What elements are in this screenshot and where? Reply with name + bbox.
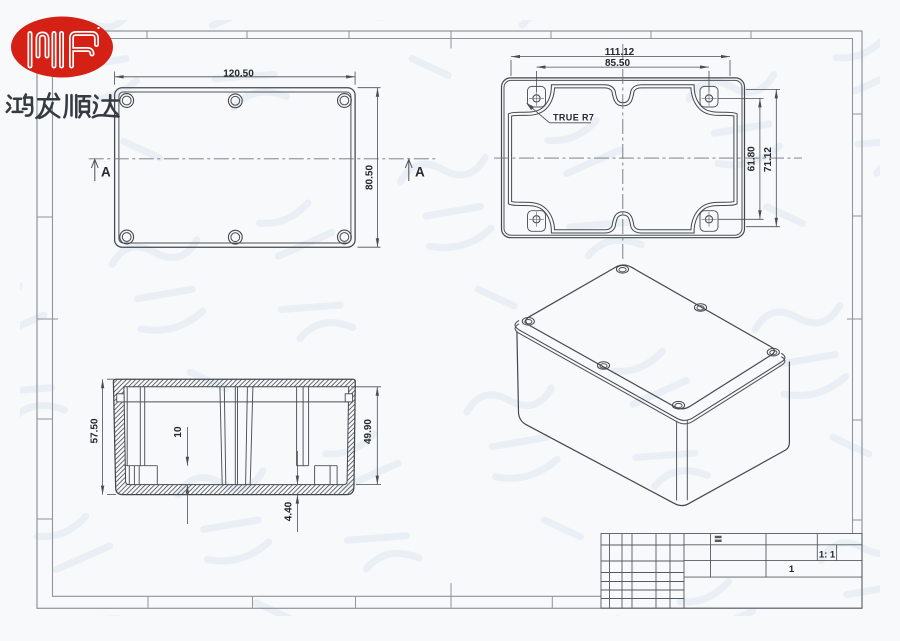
- svg-text:1: 1: 1: 1: [819, 549, 836, 560]
- svg-text:71.12: 71.12: [763, 147, 774, 172]
- svg-text:61.80: 61.80: [747, 146, 758, 171]
- svg-text:85.50: 85.50: [605, 58, 630, 69]
- svg-text:80.50: 80.50: [364, 165, 375, 190]
- svg-text:10: 10: [173, 426, 184, 438]
- svg-text:49.90: 49.90: [363, 419, 374, 444]
- svg-text:4.40: 4.40: [284, 501, 295, 521]
- svg-text:TRUE R7: TRUE R7: [553, 112, 594, 122]
- svg-text:120.50: 120.50: [223, 68, 254, 79]
- svg-text:A: A: [101, 165, 111, 180]
- svg-text:111.12: 111.12: [605, 47, 635, 58]
- svg-text:A: A: [415, 165, 425, 180]
- svg-text:1: 1: [789, 564, 795, 575]
- svg-text:57.50: 57.50: [89, 418, 100, 443]
